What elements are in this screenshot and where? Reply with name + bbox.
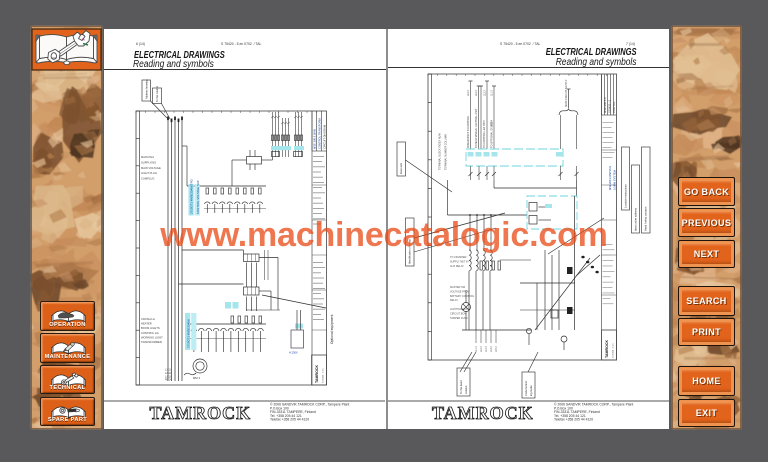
svg-text:To the dead: To the dead (459, 380, 463, 394)
svg-text:S75420 - 5: S75420 - 5 (608, 99, 612, 113)
svg-text:TAMROCK: TAMROCK (605, 339, 609, 358)
svg-text:S 75420 - 5 en: S 75420 - 5 en (323, 368, 325, 383)
svg-text:ing mode: ing mode (529, 385, 533, 396)
svg-text:TAMROCK: TAMROCK (315, 364, 319, 383)
svg-text:BOOM LIGHTS: BOOM LIGHTS (141, 326, 160, 330)
svg-text:TO OPTIONAL DEVICE: TO OPTIONAL DEVICE (491, 121, 494, 148)
svg-text:S 75420 - 5 en: S 75420 - 5 en (613, 343, 615, 358)
svg-text:4MSE30ANKT IN CONTROL: 4MSE30ANKT IN CONTROL (467, 115, 470, 148)
svg-text:MAIN CIRCUIT SUPPLY: MAIN CIRCUIT SUPPLY (565, 79, 568, 107)
svg-text:Location instructions: Location instructions (624, 184, 628, 208)
svg-text:TO MECHANICAL CENTRAL UNIT: TO MECHANICAL CENTRAL UNIT (475, 108, 478, 148)
svg-text:1L1 2: 1L1 2 (492, 90, 494, 96)
svg-text:271SOT1 4MSE30AN6: 271SOT1 4MSE30AN6 (186, 319, 190, 348)
svg-text:WORKING LIGHT: WORKING LIGHT (141, 335, 163, 339)
svg-text:BATTERY CONTROL: BATTERY CONTROL (450, 295, 475, 298)
svg-text:1L2 2: 1L2 2 (481, 346, 483, 352)
svg-text:TO CONTROLLER: TO CONTROLLER (483, 127, 486, 148)
svg-text:H 230V: H 230V (289, 351, 298, 355)
svg-text:Coils monitor: Coils monitor (524, 381, 528, 396)
svg-text:CIRCUIT BOX: CIRCUIT BOX (450, 312, 466, 315)
svg-text:MSE 300 5.5KW: MSE 300 5.5KW (313, 129, 317, 149)
svg-text:TAMROCK: TAMROCK (432, 403, 534, 423)
svg-text:TO CRUSHER: TO CRUSHER (450, 256, 467, 259)
svg-text:5.5KW SYSTEM: 5.5KW SYSTEM (613, 169, 617, 190)
svg-text:MSE 300 5.5: MSE 300 5.5 (603, 97, 607, 113)
svg-text:LIGHTING AUX: LIGHTING AUX (450, 308, 468, 311)
svg-text:1L2 2: 1L2 2 (485, 90, 487, 96)
svg-text:Fuse size: Fuse size (399, 162, 403, 174)
svg-text:MAIN VOLTAGE: MAIN VOLTAGE (141, 166, 161, 170)
svg-text:LIGHT PLUG: LIGHT PLUG (141, 171, 157, 175)
svg-text:1L2 2: 1L2 2 (468, 90, 470, 96)
svg-text:0702 TAL: 0702 TAL (612, 101, 616, 113)
svg-text:TERMINAL BLOCK INDEX NUM: TERMINAL BLOCK INDEX NUM (439, 134, 442, 170)
svg-text:CONTROL TRANSFORM: CONTROL TRANSFORM (317, 117, 321, 149)
svg-text:388.5: 388.5 (484, 120, 486, 126)
svg-text:HEATER: HEATER (141, 322, 152, 326)
svg-text:MSE300 CONTROL: MSE300 CONTROL (608, 165, 612, 190)
svg-text:PE 14: PE 14 (165, 379, 172, 382)
svg-text:1L2 2: 1L2 2 (476, 90, 478, 96)
svg-text:271SOT1 4MSE30AN6TRO: 271SOT1 4MSE30AN6TRO (190, 178, 194, 214)
svg-text:Telefax +358 205 44 4120: Telefax +358 205 44 4120 (554, 418, 593, 422)
svg-text:column: column (464, 385, 468, 394)
svg-text:SUPPLY NET IN: SUPPLY NET IN (450, 260, 469, 263)
svg-text:TRANSFORMER: TRANSFORMER (141, 340, 162, 344)
svg-text:1L3 2: 1L3 2 (486, 346, 488, 352)
svg-text:MASTER SW: MASTER SW (450, 286, 466, 289)
svg-text:MAIN PHA: MAIN PHA (141, 155, 154, 159)
svg-text:Optional equipment: Optional equipment (330, 315, 334, 344)
svg-text:TAMPER FUNC: TAMPER FUNC (450, 317, 468, 320)
svg-text:1L4 2: 1L4 2 (491, 346, 493, 352)
svg-text:1L1 2: 1L1 2 (476, 346, 478, 352)
svg-text:SUPPLYING: SUPPLYING (141, 160, 156, 164)
svg-text:CONTROL GA: CONTROL GA (141, 331, 159, 335)
svg-text:TAMROCK: TAMROCK (150, 403, 252, 423)
svg-text:CIRCUIT DIAGRAM: CIRCUIT DIAGRAM (322, 124, 326, 149)
svg-text:AUX RELAY: AUX RELAY (450, 265, 464, 268)
svg-text:Telefax +358 205 44 4120: Telefax +358 205 44 4120 (270, 418, 309, 422)
svg-text:RM 1: RM 1 (193, 376, 200, 380)
svg-text:TERMINAL NUMBER COLUMN: TERMINAL NUMBER COLUMN (445, 134, 448, 170)
svg-text:Address lettering: Address lettering (145, 79, 149, 99)
svg-text:To the column: To the column (155, 85, 159, 102)
svg-text:1L5 2: 1L5 2 (496, 346, 498, 352)
svg-text:CONTROL VOLTAGE SUP: CONTROL VOLTAGE SUP (196, 180, 200, 214)
svg-text:RELAY: RELAY (450, 299, 458, 302)
svg-text:CRUSH.LH: CRUSH.LH (141, 317, 155, 321)
svg-text:CUMPLUG: CUMPLUG (141, 177, 154, 181)
svg-text:VOLTAGE FROM: VOLTAGE FROM (450, 290, 470, 293)
